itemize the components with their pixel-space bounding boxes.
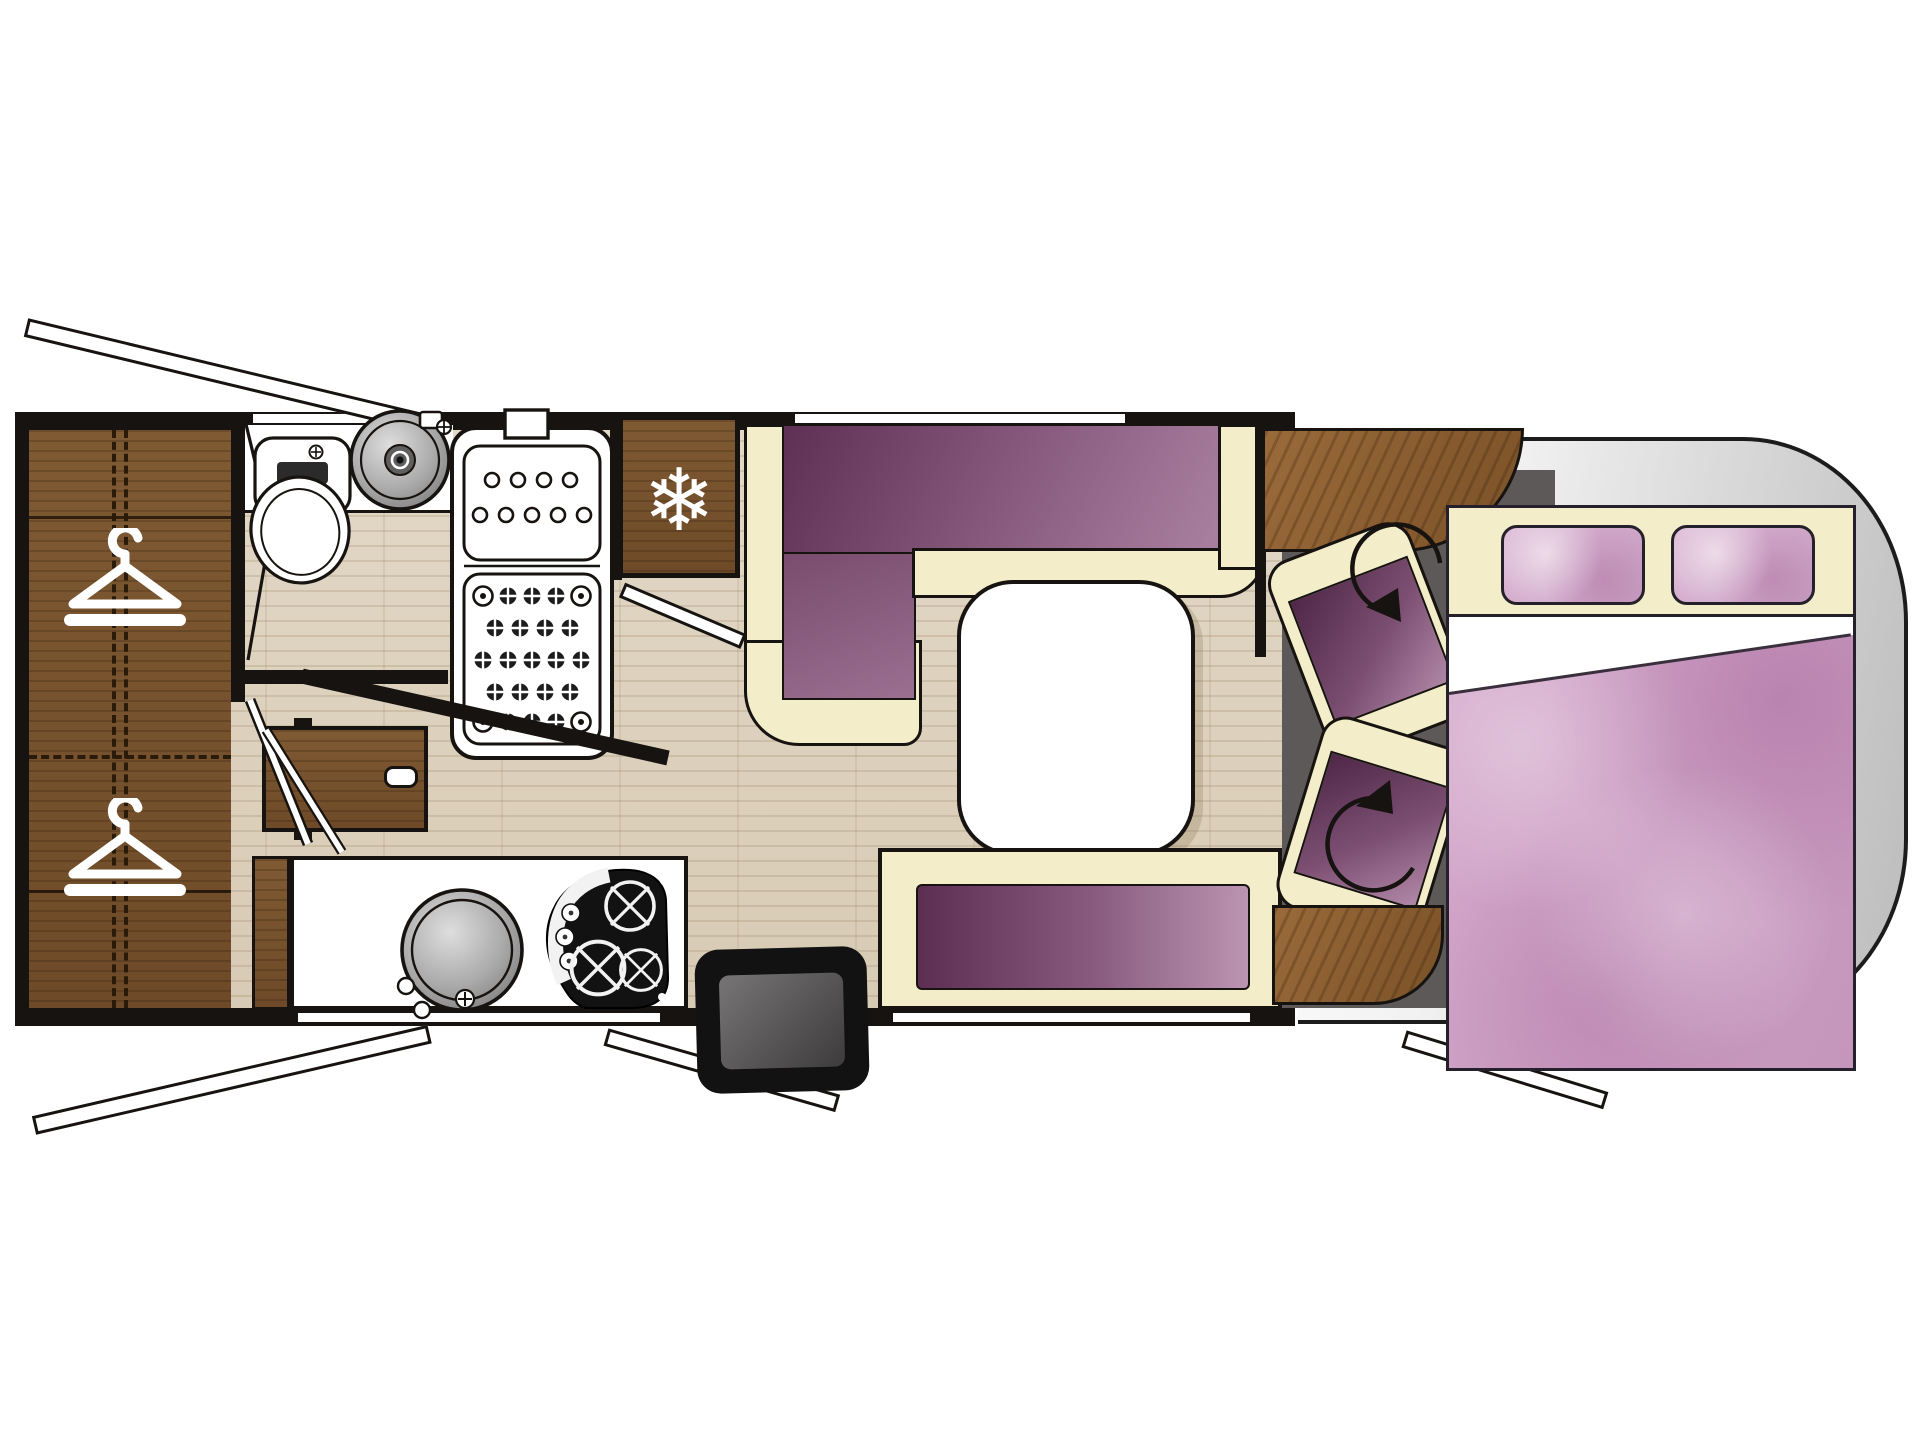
wardrobe-door bbox=[250, 700, 308, 844]
toilet bbox=[244, 438, 356, 589]
pillow bbox=[1671, 525, 1815, 605]
kitchen-hob bbox=[547, 870, 668, 1008]
tv-unit bbox=[694, 946, 870, 1094]
washbasin bbox=[351, 411, 451, 509]
tv-screen bbox=[719, 972, 845, 1069]
bed-headboard bbox=[1449, 508, 1853, 617]
shower bbox=[452, 410, 612, 758]
floorplan-stage: ❄ bbox=[0, 0, 1920, 1440]
pillow bbox=[1501, 525, 1645, 605]
kitchen-sink bbox=[398, 890, 522, 1018]
rotation-arrow-icon bbox=[1328, 780, 1413, 890]
bed bbox=[1446, 505, 1856, 1071]
rotation-arrow-icon bbox=[1352, 524, 1440, 622]
